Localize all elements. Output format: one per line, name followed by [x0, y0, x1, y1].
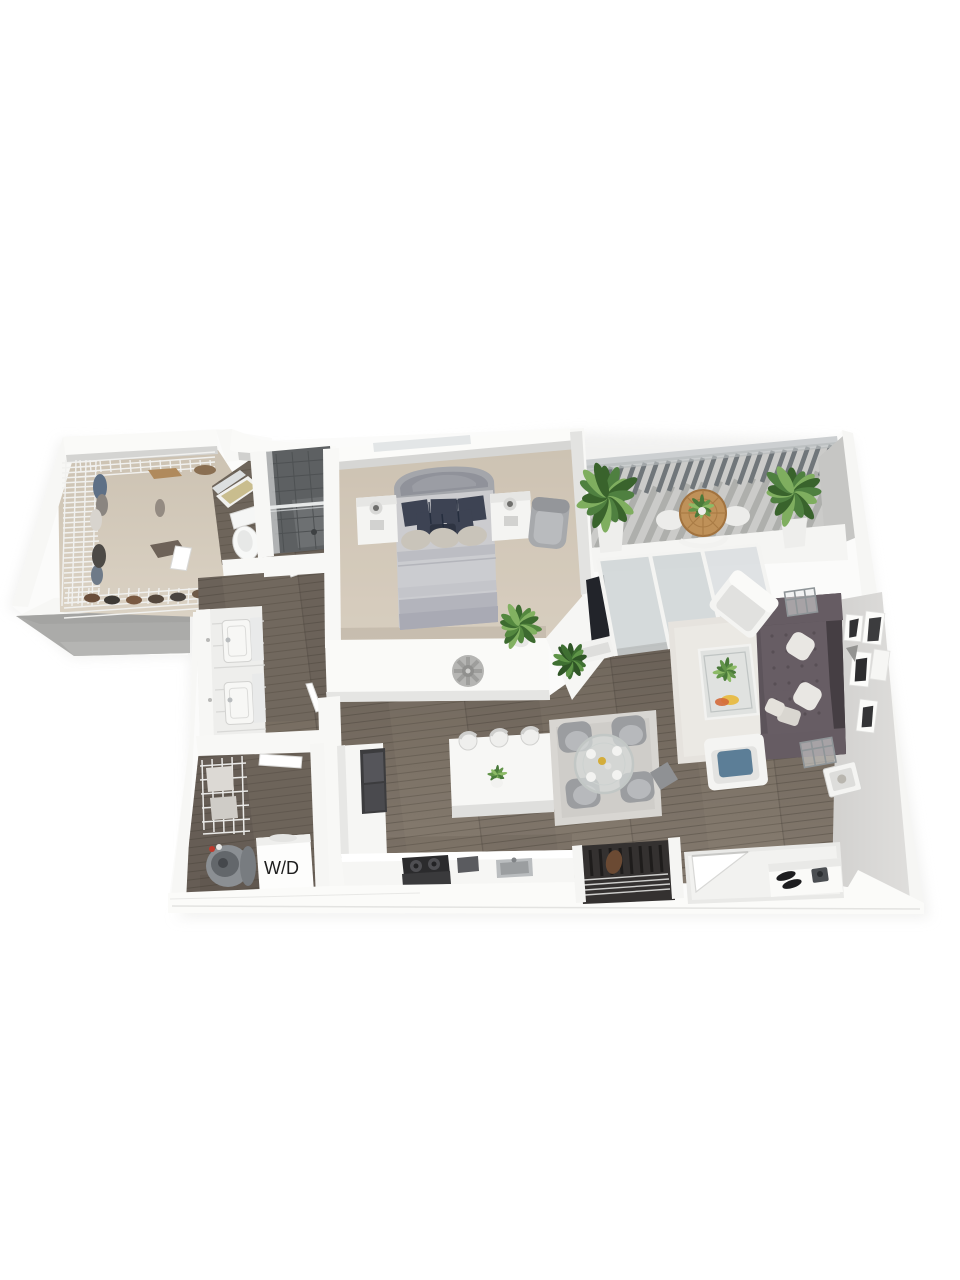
svg-text:W/D: W/D — [264, 858, 299, 878]
